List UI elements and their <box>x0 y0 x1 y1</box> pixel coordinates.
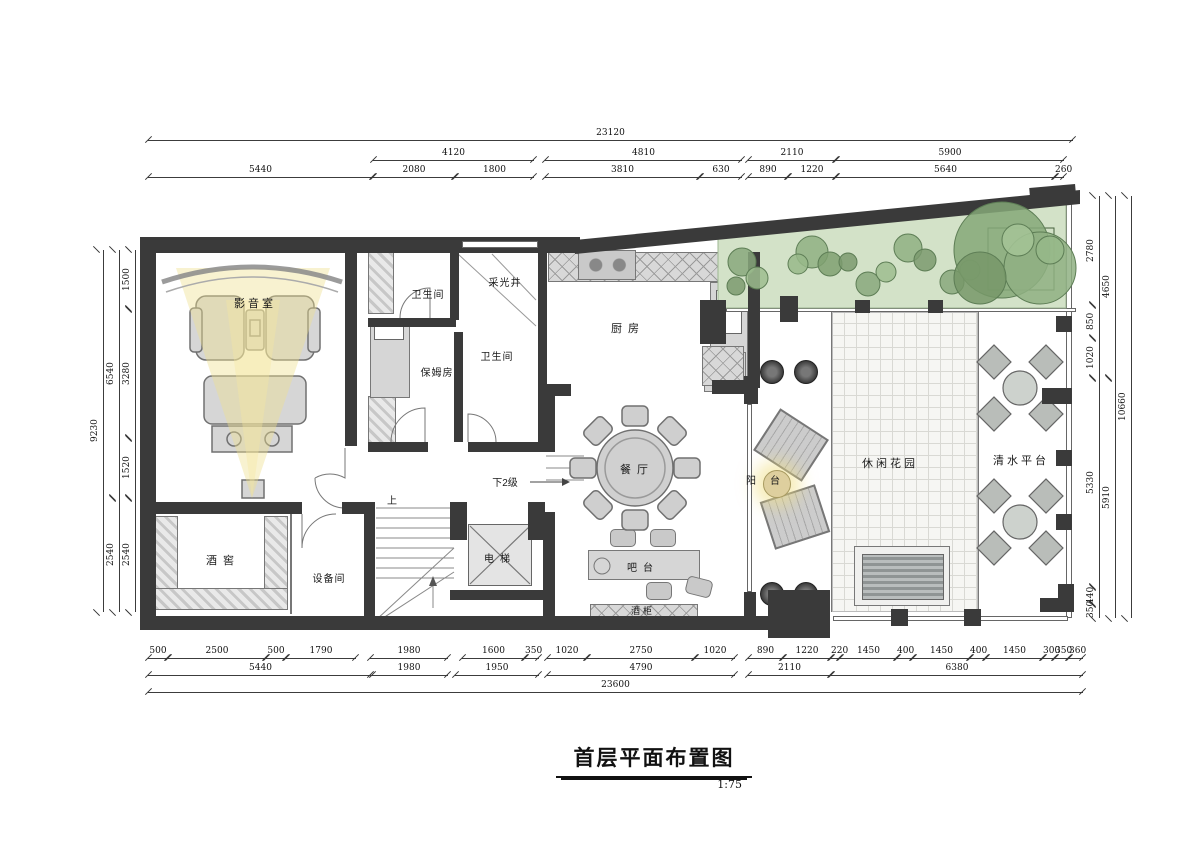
stove <box>578 250 636 280</box>
wall-segment <box>468 442 547 452</box>
dim-label: 500 <box>148 646 168 659</box>
wall-segment <box>345 250 357 446</box>
dim-label: 300 <box>1043 646 1055 659</box>
planter-box <box>1029 184 1077 208</box>
dim-label: 350 <box>1055 646 1069 659</box>
bar-stool <box>650 529 676 547</box>
dim-label: 1600 <box>462 646 525 659</box>
room-label-equipment: 设备间 <box>296 570 362 585</box>
column <box>450 502 467 540</box>
dim-label: 5330 <box>1086 378 1100 587</box>
dim-label: 1020 <box>547 646 587 659</box>
dim-label: 890 <box>748 646 783 659</box>
balcony-lounger <box>753 408 829 482</box>
label-up: 上 <box>382 492 402 507</box>
dim-label: 260 <box>1055 165 1064 178</box>
bar-stool <box>646 582 672 600</box>
potted-plant <box>760 360 784 384</box>
right-glass-wall <box>1066 198 1072 618</box>
dim-label: 400 <box>970 646 986 659</box>
column <box>528 502 545 540</box>
dim-label: 10660 <box>1118 196 1132 618</box>
wall-segment <box>140 250 156 616</box>
wall-segment <box>538 250 547 332</box>
dim-label: 6540 <box>106 250 120 498</box>
bench-slats <box>862 554 944 600</box>
dim-label: 2110 <box>748 663 831 676</box>
hall-steps <box>546 456 584 480</box>
column <box>891 609 908 626</box>
wall-segment <box>748 252 760 388</box>
column <box>700 300 726 344</box>
wall-segment <box>368 442 428 452</box>
wall-segment <box>140 502 302 514</box>
dim-label: 3810 <box>545 165 700 178</box>
dim-label: 1950 <box>455 663 539 676</box>
dim-label: 890 <box>748 165 788 178</box>
drawing-title: 首层平面布置图 <box>556 742 752 778</box>
dim-label: 9230 <box>90 250 104 612</box>
room-label-winecab: 酒柜 <box>610 604 676 617</box>
room-label-lightwell: 采光井 <box>470 274 540 289</box>
column <box>1042 388 1072 404</box>
label-down-2-steps: 下2级 <box>480 474 530 489</box>
dim-label: 2540 <box>122 498 136 612</box>
staircase <box>376 508 454 620</box>
dim-label: 2780 <box>1086 196 1100 305</box>
room-label-elevator: 电梯 <box>472 550 528 565</box>
bar-stool <box>610 529 636 547</box>
dim-label: 23600 <box>148 680 1083 693</box>
bottom-railing <box>833 616 1068 621</box>
wall-segment <box>454 332 463 442</box>
tree-canopies <box>727 202 1076 304</box>
dim-label: 1020 <box>695 646 735 659</box>
dim-label: 5910 <box>1102 378 1116 618</box>
plan-overlay <box>0 0 1200 842</box>
column <box>1058 584 1074 612</box>
dim-label: 2750 <box>587 646 695 659</box>
dim-label: 4810 <box>545 148 742 161</box>
dim-label: 1220 <box>783 646 831 659</box>
balcony-glass-wall <box>747 404 752 592</box>
room-label-nanny: 保姆房 <box>406 364 468 379</box>
column <box>744 592 756 618</box>
lightwell-window <box>462 241 538 248</box>
room-label-bath2: 卫生间 <box>466 348 528 363</box>
dim-label: 1520 <box>122 438 136 498</box>
dim-label: 5440 <box>148 165 373 178</box>
slanted-wall <box>575 190 1080 254</box>
wall-segment <box>140 616 768 630</box>
dim-label: 1450 <box>986 646 1043 659</box>
dim-label: 2080 <box>373 165 455 178</box>
column <box>780 296 798 322</box>
potted-plant <box>794 360 818 384</box>
column <box>964 609 981 626</box>
garden-edge-wall <box>726 308 1076 312</box>
dim-label: 850 <box>1086 305 1100 338</box>
wall-segment <box>368 318 456 327</box>
dim-label: 4650 <box>1102 196 1116 378</box>
dim-label: 360 <box>1069 646 1083 659</box>
dim-label: 1220 <box>788 165 836 178</box>
dim-label: 3280 <box>122 309 136 438</box>
dim-label: 1800 <box>455 165 534 178</box>
floor-plan-sheet: 23120 4120 4810 2110 5900 5440 2080 1800… <box>0 0 1200 842</box>
dim-label: 500 <box>266 646 286 659</box>
dim-label: 350 <box>525 646 539 659</box>
column <box>744 376 758 404</box>
shower-area <box>368 252 394 314</box>
room-label-plaza: 清水平台 <box>974 452 1068 468</box>
room-label-cinema: 影音室 <box>215 295 295 311</box>
dim-label: 1450 <box>913 646 970 659</box>
dim-label: 2110 <box>748 148 836 161</box>
column <box>1056 316 1072 332</box>
dim-label: 1790 <box>286 646 356 659</box>
dim-label: 2500 <box>168 646 266 659</box>
wall-segment <box>543 392 555 452</box>
dim-label: 23120 <box>148 128 1073 141</box>
column <box>855 300 870 313</box>
wall-segment <box>364 502 375 628</box>
dim-label: 1500 <box>122 250 136 309</box>
dim-label: 4120 <box>373 148 534 161</box>
dim-label: 1980 <box>370 646 448 659</box>
dim-label: 4790 <box>547 663 735 676</box>
dim-label: 350 <box>1086 604 1100 618</box>
room-label-cellar: 酒窖 <box>183 552 263 568</box>
trees-layer <box>0 0 1200 842</box>
column <box>928 300 943 313</box>
wardrobe <box>368 396 396 444</box>
dim-label: 5640 <box>836 165 1055 178</box>
room-label-bar: 吧台 <box>608 559 678 574</box>
balcony-garden-line <box>831 312 832 612</box>
dim-label: 1020 <box>1086 338 1100 378</box>
dim-label: 5900 <box>836 148 1064 161</box>
dim-label: 2540 <box>106 498 120 612</box>
drawing-scale: 1:75 <box>556 778 742 791</box>
dim-label: 630 <box>700 165 742 178</box>
cinema-screen <box>162 267 342 292</box>
room-label-dining: 餐厅 <box>597 461 677 477</box>
room-label-garden: 休闲花园 <box>843 455 937 471</box>
room-label-bath1: 卫生间 <box>398 286 458 301</box>
wine-rack <box>154 588 288 610</box>
dim-label: 1980 <box>370 663 448 676</box>
cinema-furniture <box>190 296 320 498</box>
column <box>1056 514 1072 530</box>
column <box>768 590 830 638</box>
wall-segment <box>450 250 459 320</box>
dim-label: 5440 <box>148 663 373 676</box>
bar-stool <box>684 575 714 599</box>
wall-segment <box>450 590 546 600</box>
dim-label: 6380 <box>831 663 1083 676</box>
down-arrow <box>530 478 570 486</box>
room-label-balcony: 阳台 <box>742 472 798 487</box>
lightwell-diagonals <box>458 254 536 326</box>
cellar-divider <box>290 514 292 614</box>
dim-label: 400 <box>897 646 913 659</box>
room-label-kitchen: 厨房 <box>588 320 668 336</box>
roof-garden-strip <box>718 202 1066 308</box>
dim-label: 1450 <box>840 646 897 659</box>
